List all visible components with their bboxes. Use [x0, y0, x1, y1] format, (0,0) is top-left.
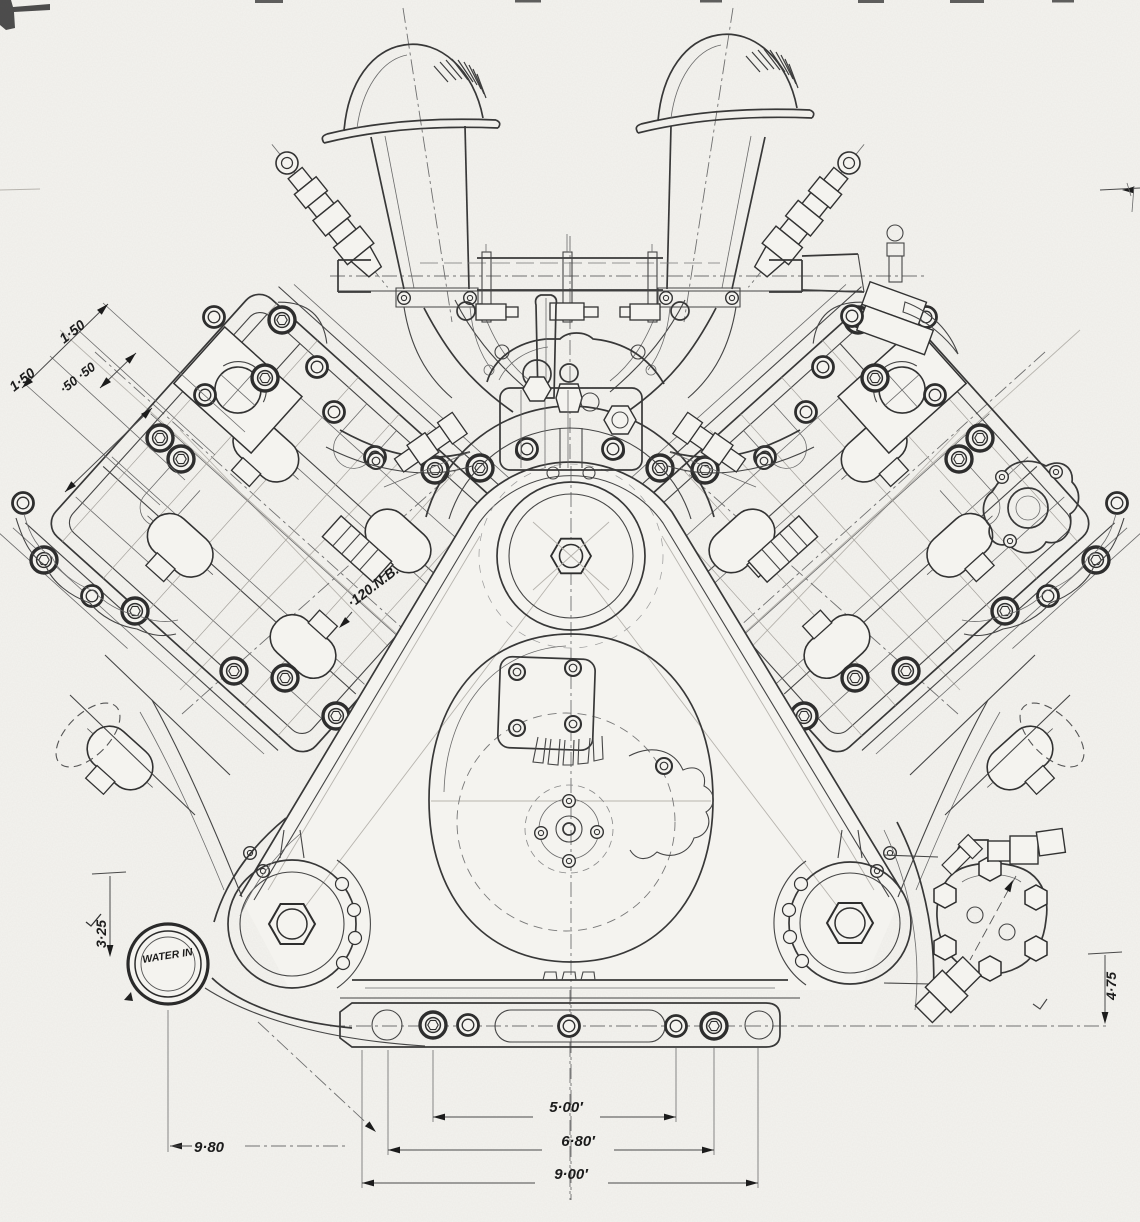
svg-text:9·80: 9·80	[194, 1139, 225, 1156]
svg-text:9·00′: 9·00′	[554, 1166, 589, 1183]
svg-text:5·00′: 5·00′	[549, 1099, 584, 1116]
svg-text:3·25: 3·25	[93, 920, 109, 948]
svg-text:6·80′: 6·80′	[561, 1133, 596, 1150]
